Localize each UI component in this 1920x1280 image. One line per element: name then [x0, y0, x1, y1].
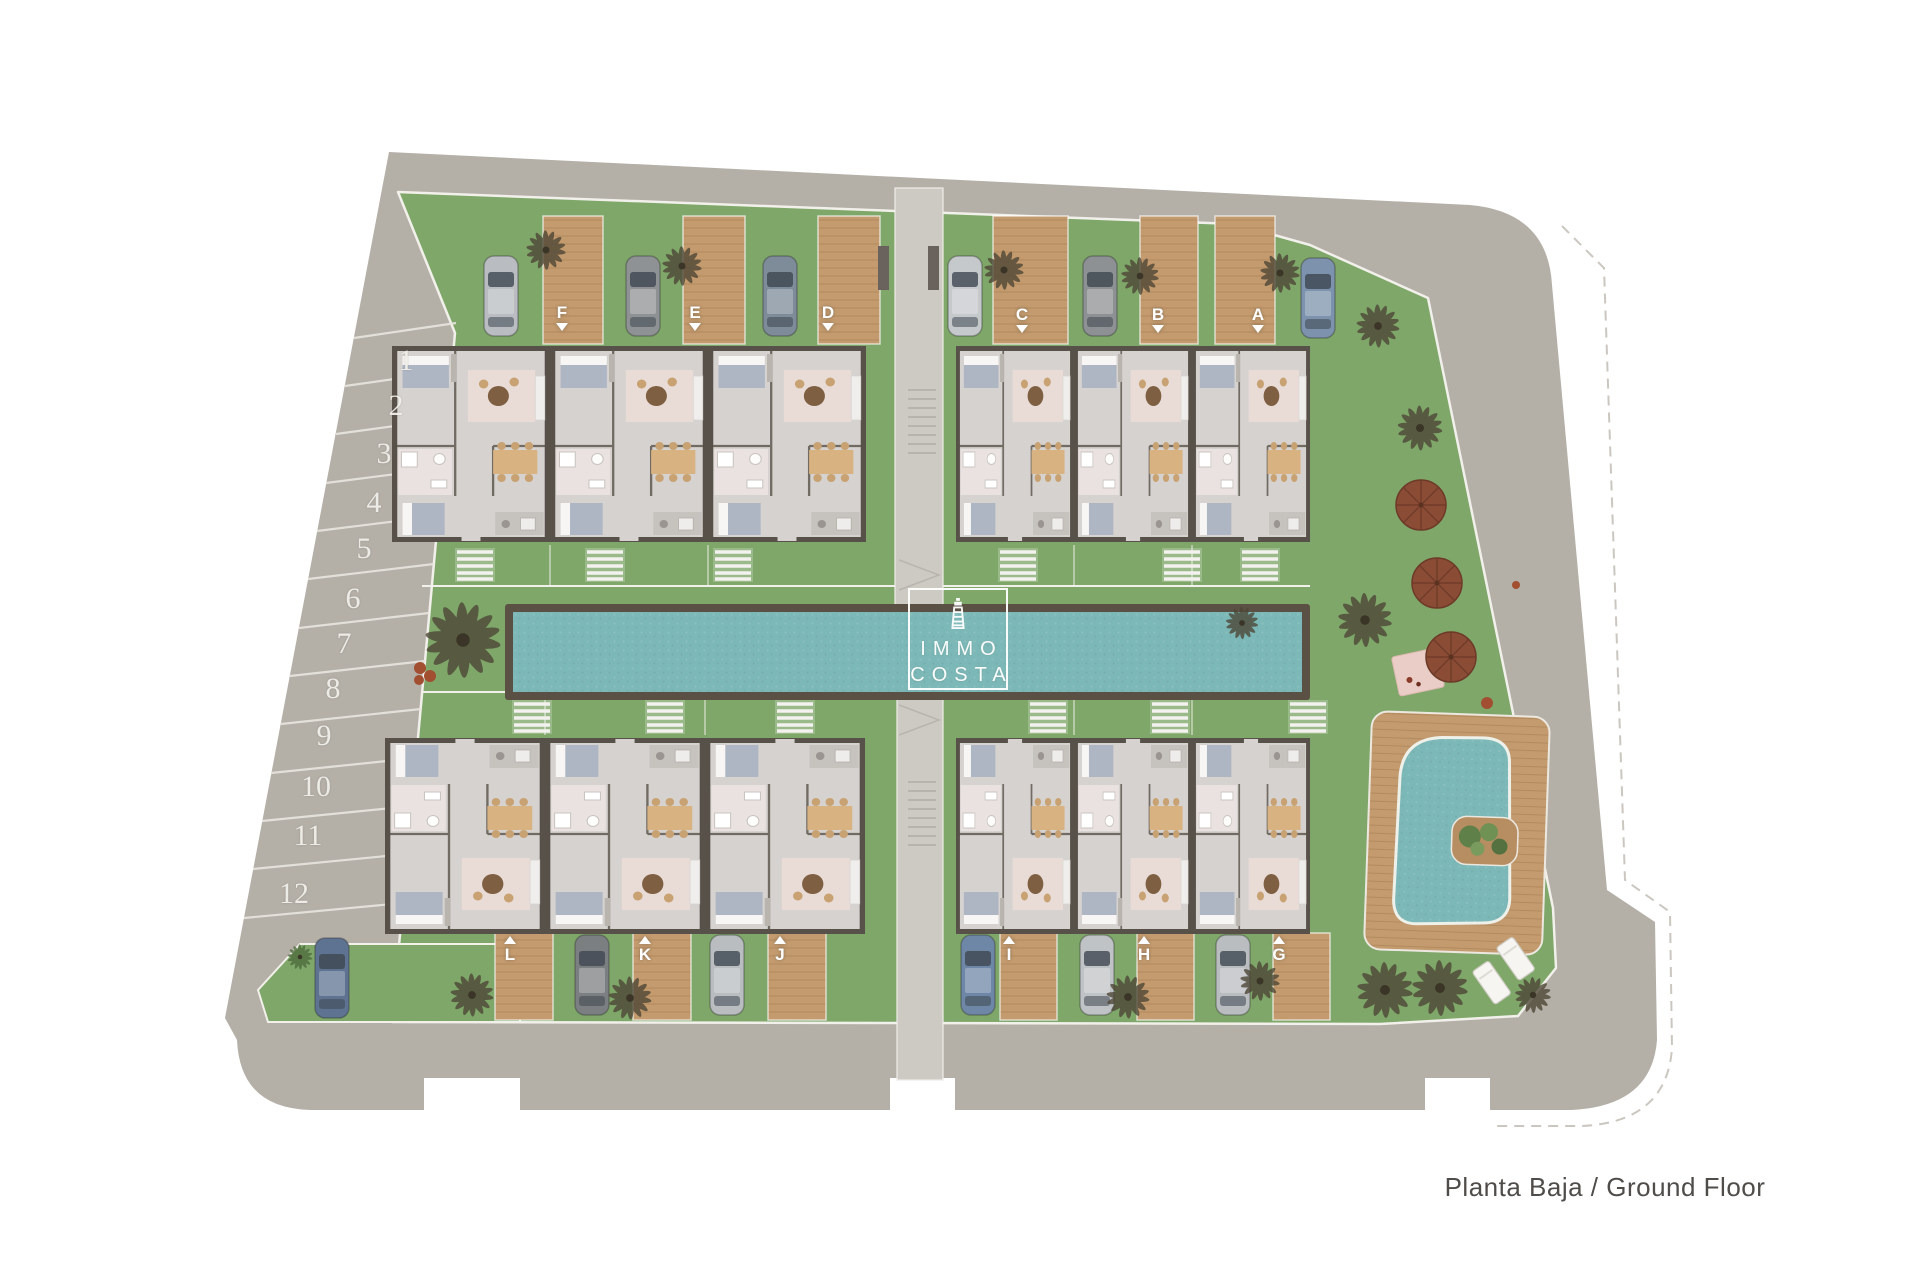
car-icon [1216, 935, 1250, 1015]
car-icon [961, 935, 995, 1015]
parking-space-number: 12 [271, 877, 317, 911]
parking-space-number: 7 [321, 627, 367, 661]
parasol-icon [1412, 558, 1462, 608]
site-plan-drawing [0, 0, 1920, 1280]
apartment-unit-C [958, 349, 1072, 542]
apartment-unit-B [1076, 349, 1190, 542]
car-icon [710, 935, 744, 1015]
car-icon [948, 256, 982, 336]
parking-space-number: 1 [383, 344, 429, 378]
car-icon [315, 938, 349, 1018]
apartment-unit-G [1194, 739, 1308, 932]
parasol-icon [1426, 632, 1476, 682]
parking-space-number: 10 [293, 770, 339, 804]
car-icon [1083, 256, 1117, 336]
parking-space-number: 3 [361, 437, 407, 471]
apartment-unit-I [958, 739, 1072, 932]
lap-pool [505, 604, 1310, 700]
parking-space-number: 9 [301, 719, 347, 753]
apartment-unit-E [553, 349, 706, 542]
pool-planter [1451, 816, 1519, 866]
parking-space-number: 2 [373, 389, 419, 423]
apartment-unit-L [388, 739, 543, 932]
car-icon [626, 256, 660, 336]
apartment-unit-H [1076, 739, 1190, 932]
apartment-unit-D [711, 349, 864, 542]
car-icon [575, 935, 609, 1015]
apartment-unit-A [1194, 349, 1308, 542]
parasol-icon [1396, 480, 1446, 530]
community-pool [1364, 711, 1550, 955]
apartment-unit-K [548, 739, 703, 932]
parking-space-number: 8 [310, 672, 356, 706]
car-icon [484, 256, 518, 336]
parking-space-number: 4 [351, 486, 397, 520]
parking-space-number: 6 [330, 582, 376, 616]
parking-space-number: 11 [285, 819, 331, 853]
car-icon [1301, 258, 1335, 338]
apartment-unit-J [708, 739, 863, 932]
site-plan-page: F E D C B A L K J I H G 1 2 3 4 5 6 7 8 … [0, 0, 1920, 1280]
parking-space-number: 5 [341, 532, 387, 566]
car-icon [763, 256, 797, 336]
